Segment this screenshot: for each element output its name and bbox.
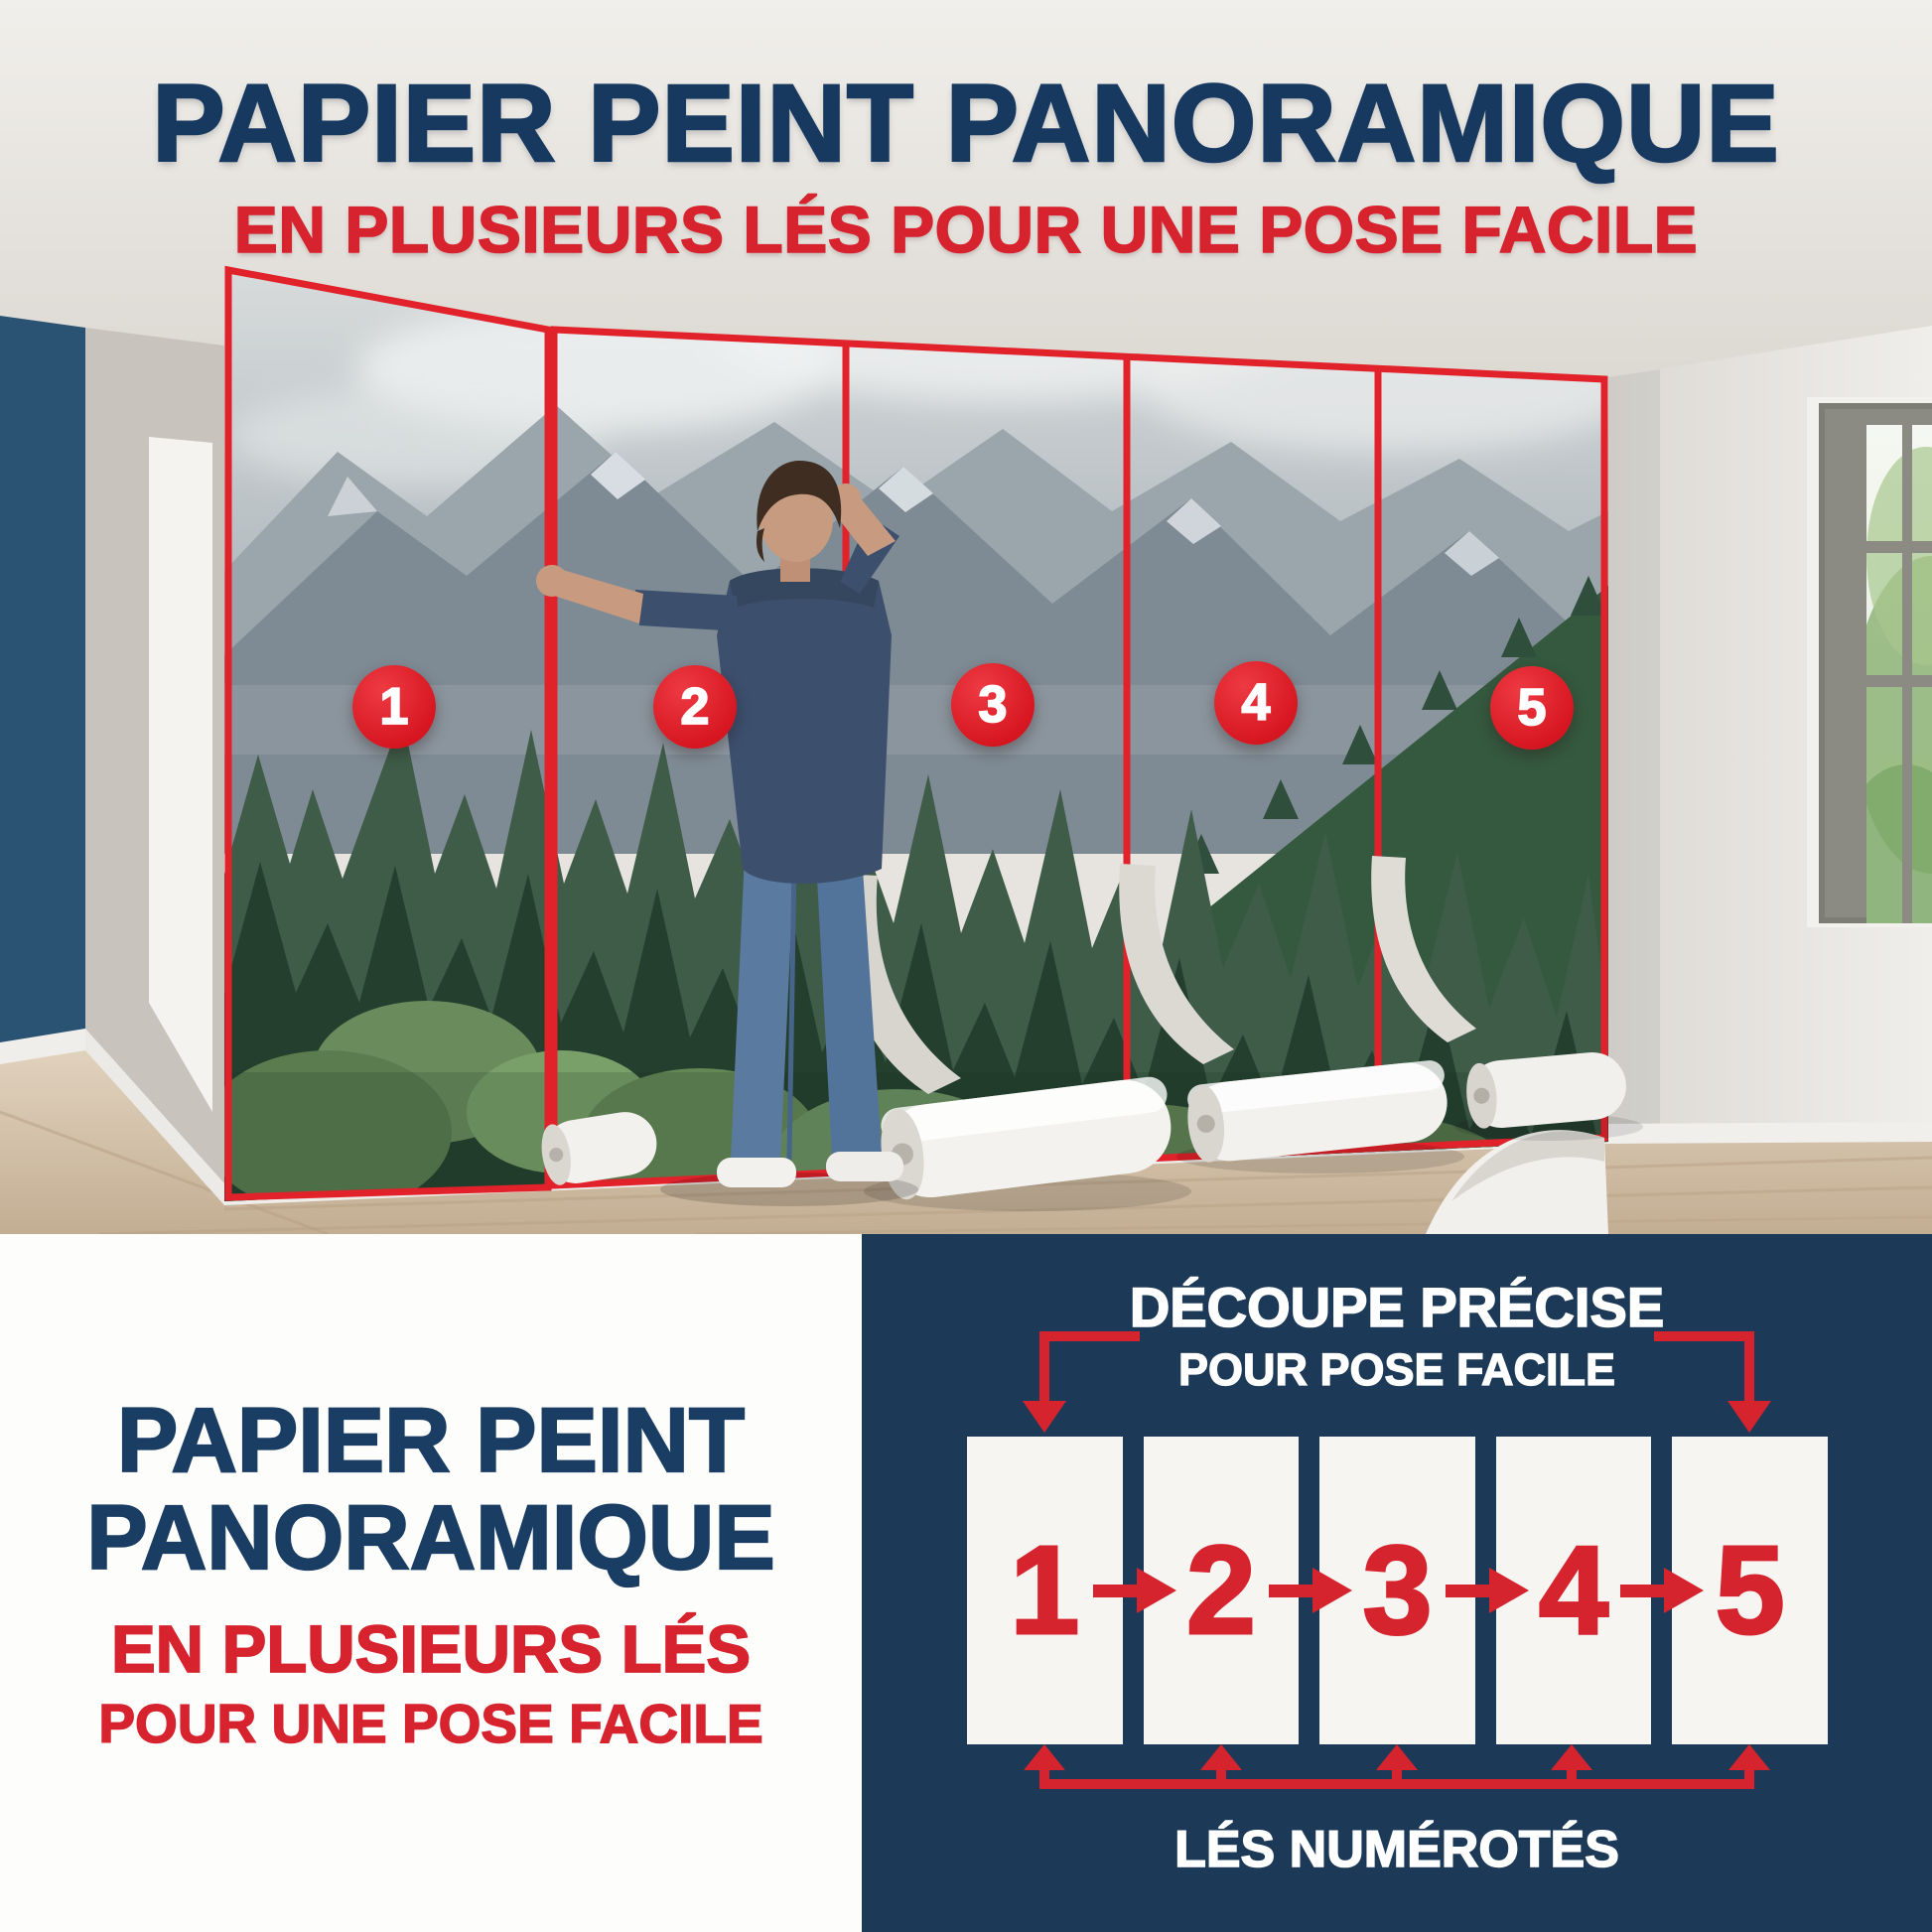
bottom-title-line1: PAPIER PEINT — [0, 1234, 862, 1490]
top-bracket-right-vertical — [1744, 1331, 1754, 1403]
up-arrow-icon — [1728, 1744, 1770, 1770]
up-arrow-icon — [1200, 1744, 1242, 1770]
bottom-bracket-riser — [1039, 1768, 1049, 1784]
bottom-title-line2: PANORAMIQUE — [0, 1490, 862, 1587]
bottom-bracket-riser — [1392, 1768, 1402, 1784]
up-arrow-icon — [1024, 1744, 1065, 1770]
hero-photo: PAPIER PEINT PANORAMIQUE EN PLUSIEURS LÉ… — [0, 0, 1932, 1234]
main-subtitle: EN PLUSIEURS LÉS POUR UNE POSE FACILE — [0, 197, 1932, 262]
top-bracket-right-horizontal — [1654, 1331, 1749, 1341]
up-arrow-icon — [1376, 1744, 1418, 1770]
panel-diagram: DÉCOUPE PRÉCISE POUR POSE FACILE 1 2 3 4… — [862, 1234, 1932, 1932]
diagram-caption: LÉS NUMÉROTÉS — [862, 1824, 1932, 1875]
bottom-bracket-riser — [1744, 1768, 1754, 1784]
panel-badge-4: 4 — [1214, 661, 1298, 745]
bottom-bracket-riser — [1216, 1768, 1226, 1784]
right-arrow-icon — [1618, 1568, 1704, 1613]
bottom-accent-line2: POUR UNE POSE FACILE — [0, 1697, 862, 1751]
right-arrow-icon — [1267, 1568, 1352, 1613]
panel-badge-2: 2 — [653, 665, 737, 749]
wallpaper-poster: PAPIER PEINT PANORAMIQUE EN PLUSIEURS LÉ… — [0, 0, 1932, 1932]
right-arrow-icon — [1091, 1568, 1176, 1613]
down-arrow-icon — [1023, 1401, 1066, 1433]
door-opening — [149, 437, 212, 1112]
panel-badge-1: 1 — [352, 665, 436, 749]
room-scene-illustration — [0, 0, 1932, 1234]
up-arrow-icon — [1551, 1744, 1592, 1770]
diagram-heading-line2: POUR POSE FACILE — [862, 1347, 1932, 1392]
bottom-accent-line1: EN PLUSIEURS LÉS — [0, 1616, 862, 1683]
diagram-heading-line1: DÉCOUPE PRÉCISE — [862, 1280, 1932, 1335]
bottom-bracket-riser — [1567, 1768, 1577, 1784]
main-title: PAPIER PEINT PANORAMIQUE — [0, 69, 1932, 179]
right-arrow-icon — [1444, 1568, 1529, 1613]
down-arrow-icon — [1727, 1401, 1771, 1433]
panel-badge-5: 5 — [1490, 666, 1574, 750]
window — [1807, 397, 1932, 983]
panel-badge-3: 3 — [951, 663, 1035, 747]
top-bracket-left-horizontal — [1044, 1331, 1140, 1341]
left-navy-wall — [0, 316, 85, 1060]
bottom-left-text-block: PAPIER PEINT PANORAMIQUE EN PLUSIEURS LÉ… — [0, 1234, 862, 1932]
top-bracket-left-vertical — [1039, 1331, 1049, 1403]
